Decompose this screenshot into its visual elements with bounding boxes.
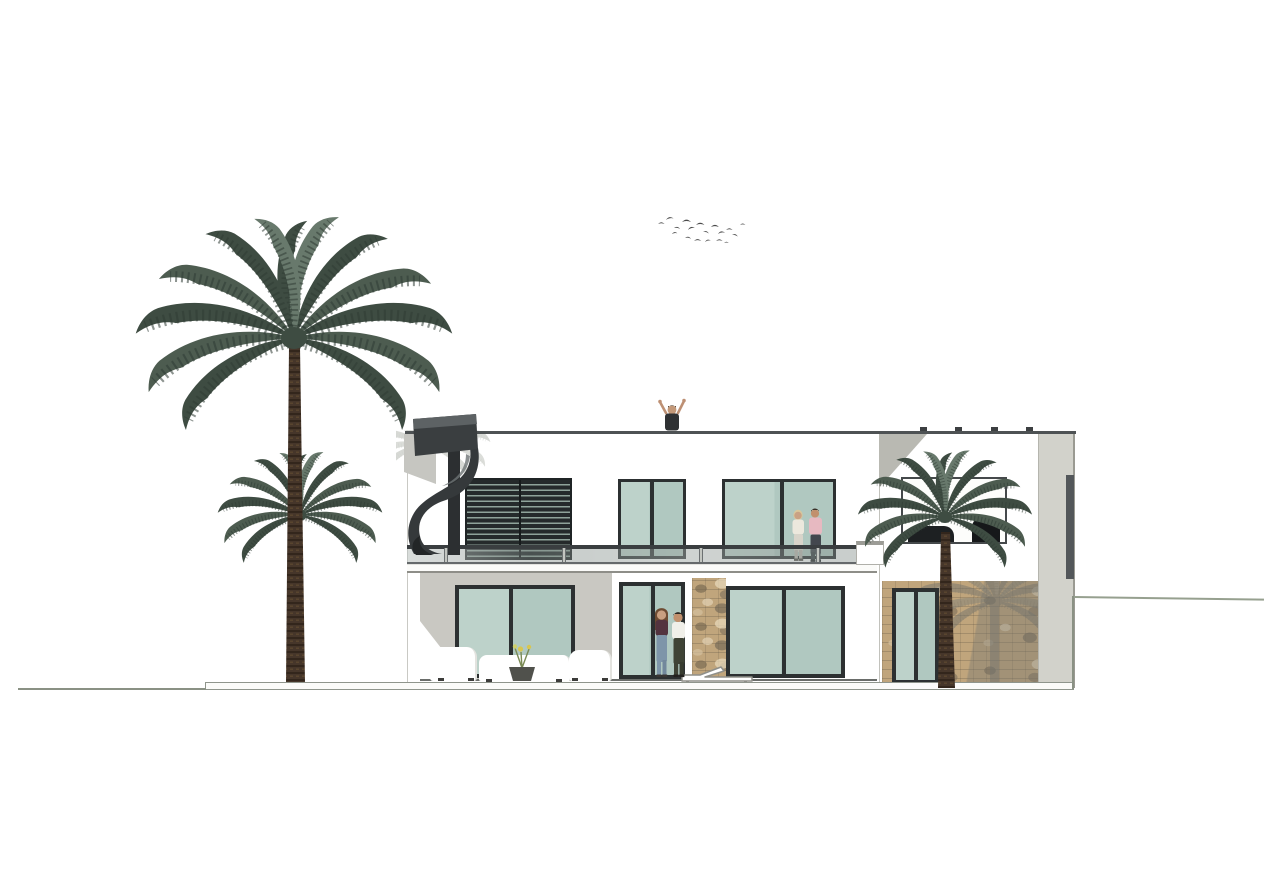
elevation-canvas <box>0 0 1280 885</box>
window-mullion <box>914 592 918 680</box>
ground-line-left <box>18 688 206 690</box>
furniture-foot <box>572 678 578 681</box>
furniture-foot <box>438 678 444 681</box>
roofline <box>405 431 1076 434</box>
pilaster-slot <box>1066 475 1074 579</box>
roof-fixing <box>1026 427 1033 431</box>
terrace-slab <box>205 682 1074 690</box>
planter-flower <box>505 640 539 682</box>
outdoor-armchair-left <box>430 647 477 681</box>
railing-post <box>699 548 703 563</box>
picture-window <box>901 477 1007 544</box>
balcony-slab <box>407 564 877 573</box>
interior-sofa-silhouette <box>908 526 954 542</box>
roof-fixing <box>955 427 962 431</box>
roof-fixing <box>991 427 998 431</box>
window-mullion <box>782 590 786 674</box>
interior-chair-silhouette <box>972 518 1000 542</box>
villa-building <box>0 0 1280 885</box>
furniture-foot <box>602 678 608 681</box>
stone-window <box>892 588 939 684</box>
parapet <box>856 541 884 565</box>
ground-couple <box>647 604 695 682</box>
furniture-foot <box>468 678 474 681</box>
railing-post <box>562 548 566 563</box>
roof-fixing <box>920 427 927 431</box>
railing-post <box>816 548 820 563</box>
spiral-staircase <box>396 410 488 560</box>
roof-person <box>655 398 689 434</box>
outdoor-armchair-right <box>569 650 612 681</box>
ground-step-vertical <box>1072 596 1074 689</box>
